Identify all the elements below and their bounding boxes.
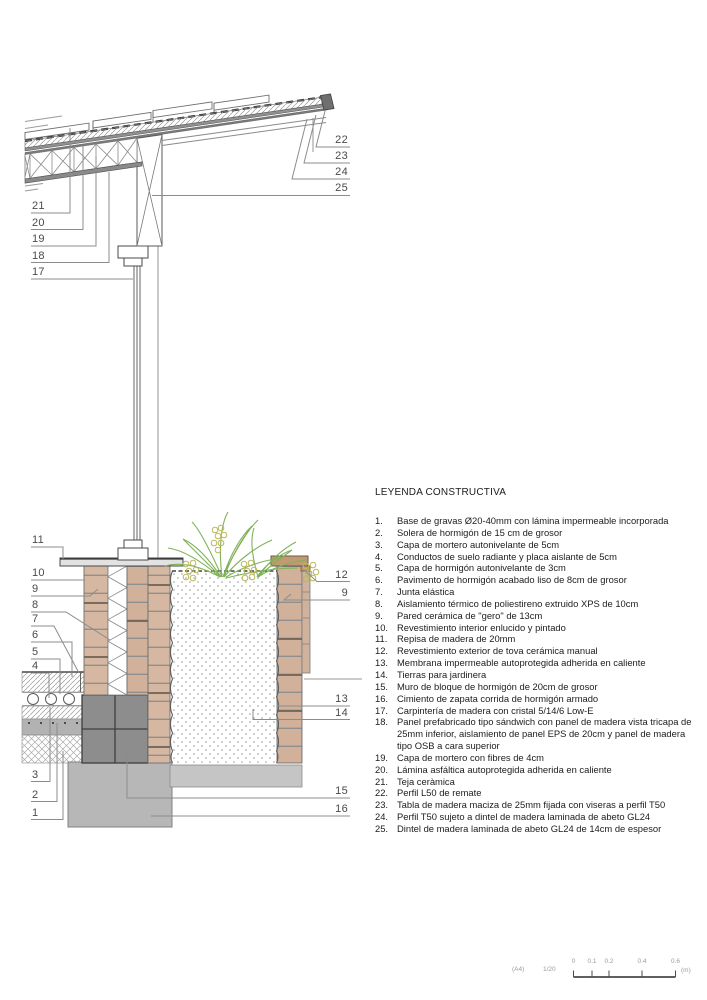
- legend-item-text: Aislamiento térmico de poliestireno extr…: [397, 598, 697, 610]
- callout-2: 2: [32, 789, 38, 801]
- callout-11: 11: [32, 534, 44, 546]
- legend-item: 11.Repisa de madera de 20mm: [375, 633, 697, 645]
- construction-detail-page: 2120191817222324251110987654321129131415…: [0, 0, 707, 1000]
- legend-item: 12.Revestimiento exterior de tova cerámi…: [375, 645, 697, 657]
- callout-1: 1: [32, 807, 38, 819]
- legend-item-text: Carpintería de madera con cristal 5/14/6…: [397, 705, 697, 717]
- legend-item-text: Capa de mortero con fibres de 4cm: [397, 752, 697, 764]
- callout-13: 13: [318, 693, 348, 705]
- legend-item: 14.Tierras para jardinera: [375, 669, 697, 681]
- callout-9: 9: [318, 587, 348, 599]
- xps-insulation: [108, 566, 127, 695]
- legend-item: 23.Tabla de madera maciza de 25mm fijada…: [375, 799, 697, 811]
- legend-item-text: Junta elástica: [397, 586, 697, 598]
- callout-21: 21: [32, 200, 45, 212]
- legend-item-text: Revestimiento interior enlucido y pintad…: [397, 622, 697, 634]
- concrete-slab-layer: [22, 719, 84, 735]
- legend-item-text: Repisa de madera de 20mm: [397, 633, 697, 645]
- legend-item-number: 15.: [375, 681, 397, 693]
- l50-edge-profile: [321, 94, 335, 110]
- legend-item: 17.Carpintería de madera con cristal 5/1…: [375, 705, 697, 717]
- legend-item: 8.Aislamiento térmico de poliestireno ex…: [375, 598, 697, 610]
- legend-item-number: 11.: [375, 633, 397, 645]
- legend-list: 1.Base de gravas Ø20-40mm con lámina imp…: [375, 515, 697, 835]
- legend-item: 2.Solera de hormigón de 15 cm de grosor: [375, 527, 697, 539]
- legend-item-number: 25.: [375, 823, 397, 835]
- legend-item: 3.Capa de mortero autonivelante de 5cm: [375, 539, 697, 551]
- legend-item: 6.Pavimento de hormigón acabado liso de …: [375, 574, 697, 586]
- legend-item: 13.Membrana impermeable autoprotegida ad…: [375, 657, 697, 669]
- legend-item-number: 17.: [375, 705, 397, 717]
- legend-item: 21.Teja ceràmica: [375, 776, 697, 788]
- callout-20: 20: [32, 217, 45, 229]
- callout-6: 6: [32, 629, 38, 641]
- legend-item-number: 12.: [375, 645, 397, 657]
- legend-title: LEYENDA CONSTRUCTIVA: [375, 487, 697, 498]
- legend-item: 20.Lámina asfáltica autoprotegida adheri…: [375, 764, 697, 776]
- legend-item-number: 20.: [375, 764, 397, 776]
- callout-17: 17: [32, 266, 45, 278]
- callout-22: 22: [318, 134, 348, 146]
- concrete-block-wall: [82, 695, 148, 763]
- legend-item-text: Cimiento de zapata corrida de hormigón a…: [397, 693, 697, 705]
- legend-item-text: Lámina asfáltica autoprotegida adherida …: [397, 764, 697, 776]
- legend-item-number: 2.: [375, 527, 397, 539]
- levelling-mortar-layer: [22, 706, 84, 719]
- legend-item-text: Muro de bloque de hormigón de 20cm de gr…: [397, 681, 697, 693]
- legend-item-text: Tierras para jardinera: [397, 669, 697, 681]
- legend-item: 16.Cimiento de zapata corrida de hormigó…: [375, 693, 697, 705]
- callout-9: 9: [32, 583, 38, 595]
- legend-item: 22.Perfil L50 de remate: [375, 787, 697, 799]
- legend-item: 19.Capa de mortero con fibres de 4cm: [375, 752, 697, 764]
- strip-footing: [68, 762, 172, 827]
- callout-16: 16: [318, 803, 348, 815]
- legend-item-number: 8.: [375, 598, 397, 610]
- legend-item-text: Conductos de suelo radiante y placa aisl…: [397, 551, 697, 563]
- callout-4: 4: [32, 660, 38, 672]
- legend-item: 10.Revestimiento interior enlucido y pin…: [375, 622, 697, 634]
- callout-14: 14: [318, 707, 348, 719]
- legend-item: 4.Conductos de suelo radiante y placa ai…: [375, 551, 697, 563]
- callout-10: 10: [32, 567, 45, 579]
- legend-item-text: Perfil L50 de remate: [397, 787, 697, 799]
- legend-item-number: 4.: [375, 551, 397, 563]
- legend-item: 18.Panel prefabricado tipo sándwich con …: [375, 716, 697, 752]
- legend-item-text: Tabla de madera maciza de 25mm fijada co…: [397, 799, 697, 811]
- legend-item: 5.Capa de hormigón autonivelante de 3cm: [375, 562, 697, 574]
- screed-pavement-layer: [22, 672, 84, 692]
- scale-ruler: [574, 971, 676, 978]
- roof-assembly: [25, 94, 334, 191]
- glulam-lintel: [137, 135, 162, 246]
- legend-item-number: 10.: [375, 622, 397, 634]
- legend-item-number: 9.: [375, 610, 397, 622]
- callout-5: 5: [32, 646, 38, 658]
- legend-item-text: Dintel de madera laminada de abeto GL24 …: [397, 823, 697, 835]
- legend-item-number: 16.: [375, 693, 397, 705]
- legend-item-number: 5.: [375, 562, 397, 574]
- gravel-base-layer: [22, 735, 84, 763]
- window-head-frame: [118, 246, 148, 266]
- floor-layers: [22, 672, 84, 763]
- legend-item-text: Capa de mortero autonivelante de 5cm: [397, 539, 697, 551]
- legend-item: 24.Perfil T50 sujeto a dintel de madera …: [375, 811, 697, 823]
- legend-item-number: 24.: [375, 811, 397, 823]
- glazing-lines: [134, 266, 140, 546]
- callout-18: 18: [32, 250, 45, 262]
- legend-item: 15.Muro de bloque de hormigón de 20cm de…: [375, 681, 697, 693]
- planter-inner-brick-wall: [148, 566, 170, 763]
- legend-item-text: Capa de hormigón autonivelante de 3cm: [397, 562, 697, 574]
- callout-23: 23: [318, 150, 348, 162]
- legend-item: 7.Junta elástica: [375, 586, 697, 598]
- plant-leaves: [165, 512, 306, 578]
- legend: LEYENDA CONSTRUCTIVA 1.Base de gravas Ø2…: [375, 487, 697, 835]
- callout-25: 25: [318, 182, 348, 194]
- legend-item-number: 7.: [375, 586, 397, 598]
- legend-item-text: Teja ceràmica: [397, 776, 697, 788]
- callout-15: 15: [318, 785, 348, 797]
- legend-item-text: Solera de hormigón de 15 cm de grosor: [397, 527, 697, 539]
- legend-item: 1.Base de gravas Ø20-40mm con lámina imp…: [375, 515, 697, 527]
- legend-item-text: Panel prefabricado tipo sándwich con pan…: [397, 716, 697, 752]
- legend-item-text: Base de gravas Ø20-40mm con lámina imper…: [397, 515, 697, 527]
- legend-item-number: 19.: [375, 752, 397, 764]
- legend-item-number: 14.: [375, 669, 397, 681]
- callout-12: 12: [318, 569, 348, 581]
- legend-item-number: 3.: [375, 539, 397, 551]
- legend-item-number: 22.: [375, 787, 397, 799]
- window-bottom-frame: [118, 540, 148, 560]
- legend-item-number: 13.: [375, 657, 397, 669]
- planter-base-slab: [170, 765, 302, 787]
- inner-brick-leaf: [127, 566, 148, 695]
- window-carpentry: [118, 246, 158, 560]
- callout-8: 8: [32, 599, 38, 611]
- callout-7: 7: [32, 613, 38, 625]
- legend-item-text: Membrana impermeable autoprotegida adher…: [397, 657, 697, 669]
- planter-soil: [171, 571, 279, 763]
- legend-item-number: 18.: [375, 716, 397, 752]
- callout-3: 3: [32, 769, 38, 781]
- legend-item-number: 23.: [375, 799, 397, 811]
- legend-item-text: Perfil T50 sujeto a dintel de madera lam…: [397, 811, 697, 823]
- legend-item-number: 21.: [375, 776, 397, 788]
- radiant-floor-pipes: [22, 693, 84, 706]
- legend-item-text: Pared cerámica de "gero" de 13cm: [397, 610, 697, 622]
- legend-item: 9.Pared cerámica de "gero" de 13cm: [375, 610, 697, 622]
- legend-item: 25.Dintel de madera laminada de abeto GL…: [375, 823, 697, 835]
- callout-24: 24: [318, 166, 348, 178]
- legend-item-number: 1.: [375, 515, 397, 527]
- callout-19: 19: [32, 233, 45, 245]
- legend-item-number: 6.: [375, 574, 397, 586]
- legend-item-text: Pavimento de hormigón acabado liso de 8c…: [397, 574, 697, 586]
- legend-item-text: Revestimiento exterior de tova cerámica …: [397, 645, 697, 657]
